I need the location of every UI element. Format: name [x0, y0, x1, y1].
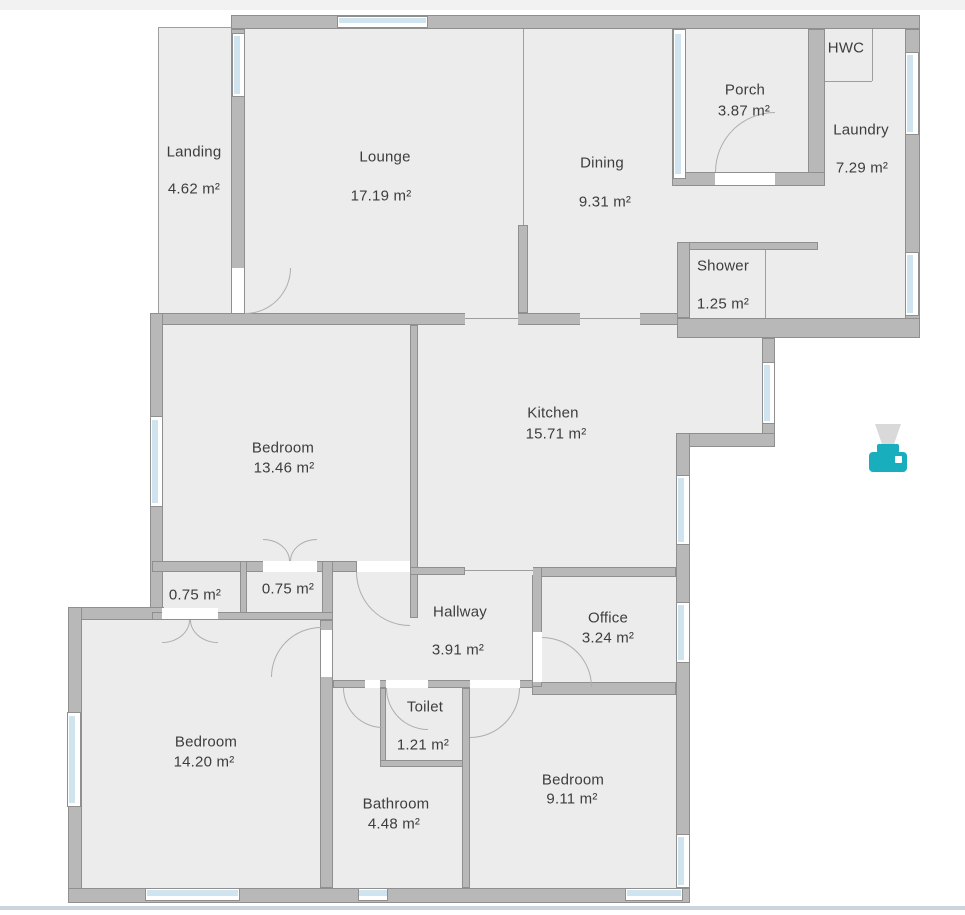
room-floor-landing	[158, 27, 232, 314]
wall-bedroom14-top	[68, 607, 164, 620]
room-area: 3.24 m²	[582, 630, 634, 647]
divider-shower	[765, 250, 766, 318]
window-bedroom9-right	[676, 834, 690, 888]
room-area: 13.46 m²	[254, 460, 315, 477]
window-glass	[339, 18, 425, 23]
window-glass	[678, 478, 684, 542]
archway-lounge-kitchen	[465, 313, 518, 325]
room-area: 3.87 m²	[718, 103, 770, 120]
room-label: HWC	[828, 40, 864, 57]
floorplan-canvas[interactable]: Landing4.62 m²Lounge17.19 m²Dining9.31 m…	[0, 0, 965, 915]
window-bedroom14-left	[67, 712, 81, 807]
door-opening-closet1	[162, 608, 218, 619]
room-area: 14.20 m²	[174, 754, 235, 771]
window-office-right	[676, 602, 690, 663]
wall-shower-left	[677, 242, 690, 318]
room-label: Bedroom	[542, 772, 604, 789]
room-area: 7.29 m²	[836, 160, 888, 177]
room-label: Hallway	[433, 604, 487, 621]
room-label: Laundry	[833, 122, 889, 139]
room-label: Shower	[697, 258, 749, 275]
wall-kitchen-step	[677, 433, 775, 447]
room-label: Porch	[725, 82, 765, 99]
room-label: Lounge	[359, 149, 410, 166]
window-laundry-upper	[905, 52, 919, 135]
window-glass	[627, 890, 681, 896]
window-bedroom13-left	[150, 416, 163, 507]
wall-toilet-bottom	[380, 760, 470, 767]
window-glass	[907, 55, 913, 131]
window-bathroom-bottom	[358, 888, 388, 901]
room-floor-bathroom	[333, 688, 462, 888]
room-label: Kitchen	[527, 405, 578, 422]
room-area: 9.31 m²	[579, 194, 631, 211]
room-area: 4.62 m²	[168, 181, 220, 198]
wall-bathroom-bedroom9	[462, 688, 470, 888]
door-opening-bathroom	[365, 680, 380, 688]
wall-kitchen-bottom-left	[410, 567, 465, 575]
room-label: Toilet	[407, 699, 443, 716]
door-opening-porch	[715, 173, 775, 185]
room-area: 0.75 m²	[169, 587, 221, 604]
window-glass	[69, 716, 75, 803]
archway-lounge-kitchen-line	[465, 318, 518, 319]
archway-kitchen-hallway-line	[465, 570, 533, 571]
door-opening-bedroom14	[321, 630, 332, 677]
window-glass	[147, 890, 237, 896]
printer-slot-shape	[895, 456, 902, 463]
archway-kitchen-hallway	[465, 567, 533, 575]
window-bedroom14-bottom	[145, 888, 240, 901]
room-label: Bedroom	[175, 734, 237, 751]
divider-hwc-right	[872, 29, 873, 81]
room-area: 1.21 m²	[397, 737, 449, 754]
door-opening-bedroom13-corridor	[357, 561, 410, 572]
room-area: 1.25 m²	[697, 296, 749, 313]
window-glass	[359, 890, 386, 896]
window-laundry-lower	[905, 252, 919, 316]
room-label: Bedroom	[252, 440, 314, 457]
wall-shower-top	[677, 242, 818, 250]
wall-office-top	[533, 567, 676, 577]
window-glass	[675, 34, 681, 173]
room-label: Dining	[580, 155, 624, 172]
wall-top	[231, 15, 920, 29]
window-lounge-top	[337, 16, 428, 28]
room-area: 0.75 m²	[262, 581, 314, 598]
window-porch-left	[673, 29, 686, 179]
door-opening-landing-lounge	[232, 268, 244, 313]
room-label: Landing	[167, 144, 222, 161]
window-kitchen-lower-right	[676, 475, 690, 545]
room-floor-hallway	[418, 575, 532, 680]
room-area: 15.71 m²	[526, 426, 587, 443]
door-opening-closet2	[263, 561, 317, 572]
window-glass	[152, 420, 158, 504]
room-floor-kitchen-lower	[418, 437, 676, 575]
room-area: 4.48 m²	[368, 816, 420, 833]
window-glass	[907, 255, 913, 313]
window-glass	[678, 837, 684, 886]
room-floor-kitchen-upper	[418, 325, 762, 437]
door-opening-office	[533, 632, 542, 682]
wall-laundry-bottom	[677, 318, 920, 338]
window-glass	[678, 605, 684, 660]
room-area: 3.91 m²	[432, 642, 484, 659]
room-label: Bathroom	[363, 796, 430, 813]
window-bedroom9-bottom	[625, 888, 683, 901]
room-label: Office	[588, 610, 628, 627]
archway-dining-kitchen	[580, 313, 640, 325]
wall-dining-divider-lower	[518, 225, 528, 313]
bottom-divider	[0, 906, 965, 910]
window-landing-lounge	[232, 33, 245, 97]
window-glass	[234, 36, 240, 94]
door-opening-bedroom9	[470, 680, 520, 688]
room-area: 17.19 m²	[351, 188, 412, 205]
window-kitchen-right	[762, 362, 775, 424]
door-opening-toilet	[386, 680, 428, 688]
printer-icon[interactable]	[866, 422, 910, 474]
archway-dining-kitchen-line	[580, 318, 640, 319]
window-glass	[764, 365, 770, 421]
divider-hwc-bottom	[825, 81, 872, 82]
room-area: 9.11 m²	[546, 791, 597, 808]
divider-lounge-dining	[523, 29, 524, 225]
top-border	[0, 0, 965, 10]
printer-paper-shape	[875, 424, 901, 445]
wall-porch-hwc	[808, 29, 825, 186]
